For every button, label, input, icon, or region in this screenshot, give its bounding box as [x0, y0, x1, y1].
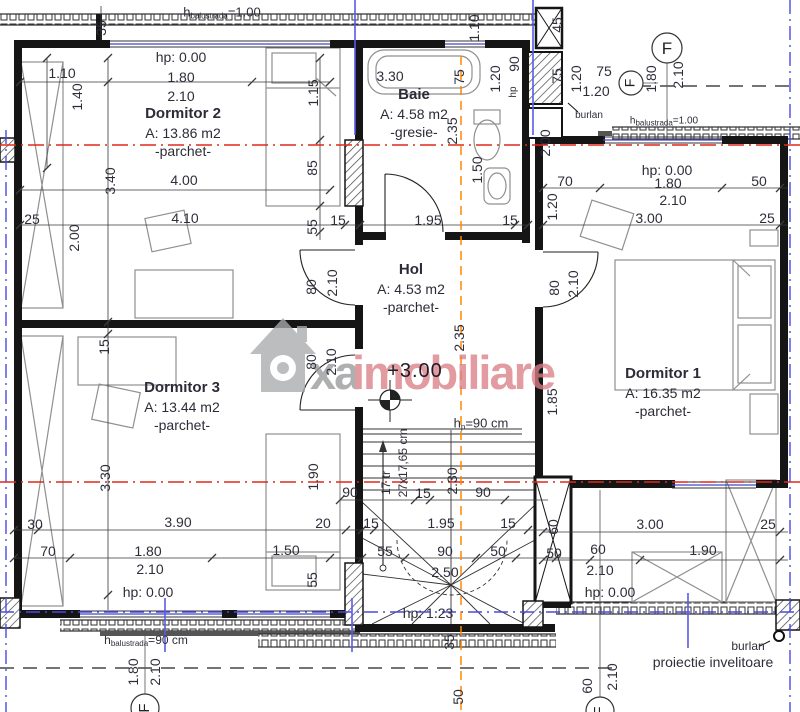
room-label-dormitor3: Dormitor 3 A: 13.44 m2 -parchet-: [144, 378, 220, 434]
downspout-label-top: burlan: [575, 111, 603, 121]
dimension-label: 35: [94, 20, 108, 36]
floor-plan-page: F F F F xa imobiliare Dormitor 2 A: 13.8…: [0, 0, 800, 712]
dimension-label: 3.40: [103, 167, 117, 194]
balustrade-height-note-top-right: hbalustrada=1.00: [630, 117, 698, 128]
room-finish: -parchet-: [377, 298, 445, 316]
room-name: Dormitor 3: [144, 378, 220, 398]
dimension-label: 90: [342, 485, 358, 499]
room-finish: -gresie-: [380, 123, 448, 141]
dimension-label: 90: [437, 544, 453, 558]
dimension-label: hp: 0.00: [156, 50, 207, 64]
dimension-label: 1.90: [689, 543, 716, 557]
dimension-label: 80: [547, 280, 561, 296]
dimension-label: 50: [490, 544, 506, 558]
dimension-label: hp: 0.00: [585, 585, 636, 599]
dimension-label: hp: [509, 86, 519, 97]
dimension-label: 1.40: [70, 83, 84, 110]
dimension-label: 2.10: [566, 270, 580, 297]
dimension-label: 2.35: [452, 324, 466, 351]
dimension-label: 1.20: [545, 193, 559, 220]
dimension-label: 1.95: [427, 516, 454, 530]
dimension-label: 2.10: [167, 89, 194, 103]
dimension-label: 15: [500, 516, 516, 530]
watermark-text-red: imobiliare: [352, 346, 555, 399]
dimension-label: 3.90: [164, 515, 191, 529]
roof-projection-label: proiectie invelitoare: [653, 655, 774, 669]
dimension-label: 15: [415, 486, 431, 500]
dimension-label: 70: [40, 544, 56, 558]
dimension-label: 3.00: [635, 211, 662, 225]
dimension-label: 2.35: [445, 117, 459, 144]
room-area: A: 13.44 m2: [144, 398, 220, 416]
room-label-baie: Baie A: 4.58 m2 -gresie-: [380, 85, 448, 141]
dimension-label: 1.15: [306, 79, 320, 106]
dimension-label: 2.10: [148, 658, 162, 685]
room-area: A: 13.86 m2: [145, 124, 221, 142]
dimension-label: 25: [24, 212, 40, 226]
dimension-label: 60: [580, 678, 594, 694]
dimension-label: 4.10: [171, 211, 198, 225]
dimension-label: 1.10: [467, 14, 481, 41]
dimension-label: 85: [305, 160, 319, 176]
dimension-label: 1.85: [545, 388, 559, 415]
stair-step-size-note: 27x17,65 cm: [397, 429, 409, 498]
dimension-label: 1.80: [644, 65, 658, 92]
dimension-label: 2.10: [659, 193, 686, 207]
level-annotation: +3.00: [387, 361, 443, 381]
dimension-label: 55: [305, 219, 319, 235]
dimension-label: 1.95: [414, 213, 441, 227]
dimension-label: 4.00: [170, 173, 197, 187]
dimension-label: 15: [502, 213, 518, 227]
dimension-label: 45: [550, 17, 564, 33]
dimension-label: 2.00: [538, 129, 552, 156]
dimension-label: 20: [315, 516, 331, 530]
dimension-label: 3.30: [376, 69, 403, 83]
shaft-chimney: [528, 8, 571, 603]
dimension-label: 2.10: [586, 563, 613, 577]
dimension-label: 1.20: [582, 84, 609, 98]
grid-letter: F: [622, 79, 638, 88]
room-name: Hol: [377, 260, 445, 280]
room-name: Dormitor 1: [625, 364, 701, 384]
dimension-label: 80: [304, 354, 318, 370]
grid-letter: F: [591, 706, 608, 712]
dimension-label: 75: [550, 68, 564, 84]
room-label-dormitor2: Dormitor 2 A: 13.86 m2 -parchet-: [145, 104, 221, 160]
dimension-label: 2.50: [431, 565, 458, 579]
dimension-label: 1.80: [126, 658, 140, 685]
room-finish: -parchet-: [145, 142, 221, 160]
dimension-label: 1.80: [654, 176, 681, 190]
dimension-label: 2.10: [325, 269, 339, 296]
dimension-label: 90: [475, 485, 491, 499]
dimension-label: 55: [305, 572, 319, 588]
grid-letter: F: [662, 39, 672, 58]
balustrade-height-note-bottom: hbalustrada=90 cm: [104, 634, 188, 648]
dimension-label: 35: [442, 634, 456, 650]
room-finish: -parchet-: [625, 402, 701, 420]
dimension-label: hp: 0.00: [123, 585, 174, 599]
dimension-label: 75: [452, 69, 466, 85]
room-area: A: 16.35 m2: [625, 384, 701, 402]
dimension-label: 1.20: [488, 65, 502, 92]
dimension-label: 1.50: [470, 156, 484, 183]
watermark: xa imobiliare: [250, 318, 555, 399]
dimension-label: 2.10: [605, 663, 619, 690]
dimension-label: 1.80: [134, 544, 161, 558]
dimension-label: 50: [751, 174, 767, 188]
dimension-label: 55: [377, 544, 393, 558]
dimension-label: hp: 1.23: [403, 606, 454, 620]
room-finish: -parchet-: [144, 416, 220, 434]
dimension-label: 2.10: [136, 562, 163, 576]
dimension-label: 1.20: [569, 65, 583, 92]
room-area: A: 4.53 m2: [377, 280, 445, 298]
dimension-label: 25: [760, 517, 776, 531]
dimension-label: 60: [546, 519, 560, 535]
dimension-label: 50: [546, 546, 562, 560]
dimension-label: 70: [557, 174, 573, 188]
dimension-label: 1.80: [167, 70, 194, 84]
room-area: A: 4.58 m2: [380, 105, 448, 123]
room-label-hol: Hol A: 4.53 m2 -parchet-: [377, 260, 445, 316]
dimension-label: 90: [507, 56, 521, 72]
dimension-label: 30: [27, 517, 43, 531]
dimension-label: 3.00: [636, 517, 663, 531]
dimension-label: 25: [759, 211, 775, 225]
dimension-label: 75: [596, 64, 612, 78]
dimension-label: 1.50: [272, 543, 299, 557]
stair-parapet-note: hp=90 cm: [454, 417, 509, 432]
room-name: Dormitor 2: [145, 104, 221, 124]
dimension-label: 1.90: [306, 463, 320, 490]
balustrade-height-note-top: hbalustrada=1.00: [183, 6, 261, 21]
downspout-label-bottom: burlan: [731, 640, 764, 652]
dimension-label: 2.10: [671, 61, 685, 88]
dimension-label: 2.30: [445, 467, 459, 494]
grid-letter: F: [136, 703, 153, 712]
room-name: Baie: [380, 85, 448, 105]
dimension-label: 50: [451, 689, 465, 705]
dimension-label: 3.30: [98, 464, 112, 491]
dimension-label: 15: [330, 213, 346, 227]
dimension-label: 1.10: [48, 66, 75, 80]
dimension-label: 2.10: [324, 348, 338, 375]
dimension-label: 15: [363, 516, 379, 530]
dimension-label: 2.00: [67, 224, 81, 251]
stair-treads-note: 17 tr: [380, 471, 392, 495]
room-label-dormitor1: Dormitor 1 A: 16.35 m2 -parchet-: [625, 364, 701, 420]
dimension-label: 80: [304, 279, 318, 295]
dimension-label: 60: [590, 542, 606, 556]
dimension-label: 15: [97, 339, 111, 355]
